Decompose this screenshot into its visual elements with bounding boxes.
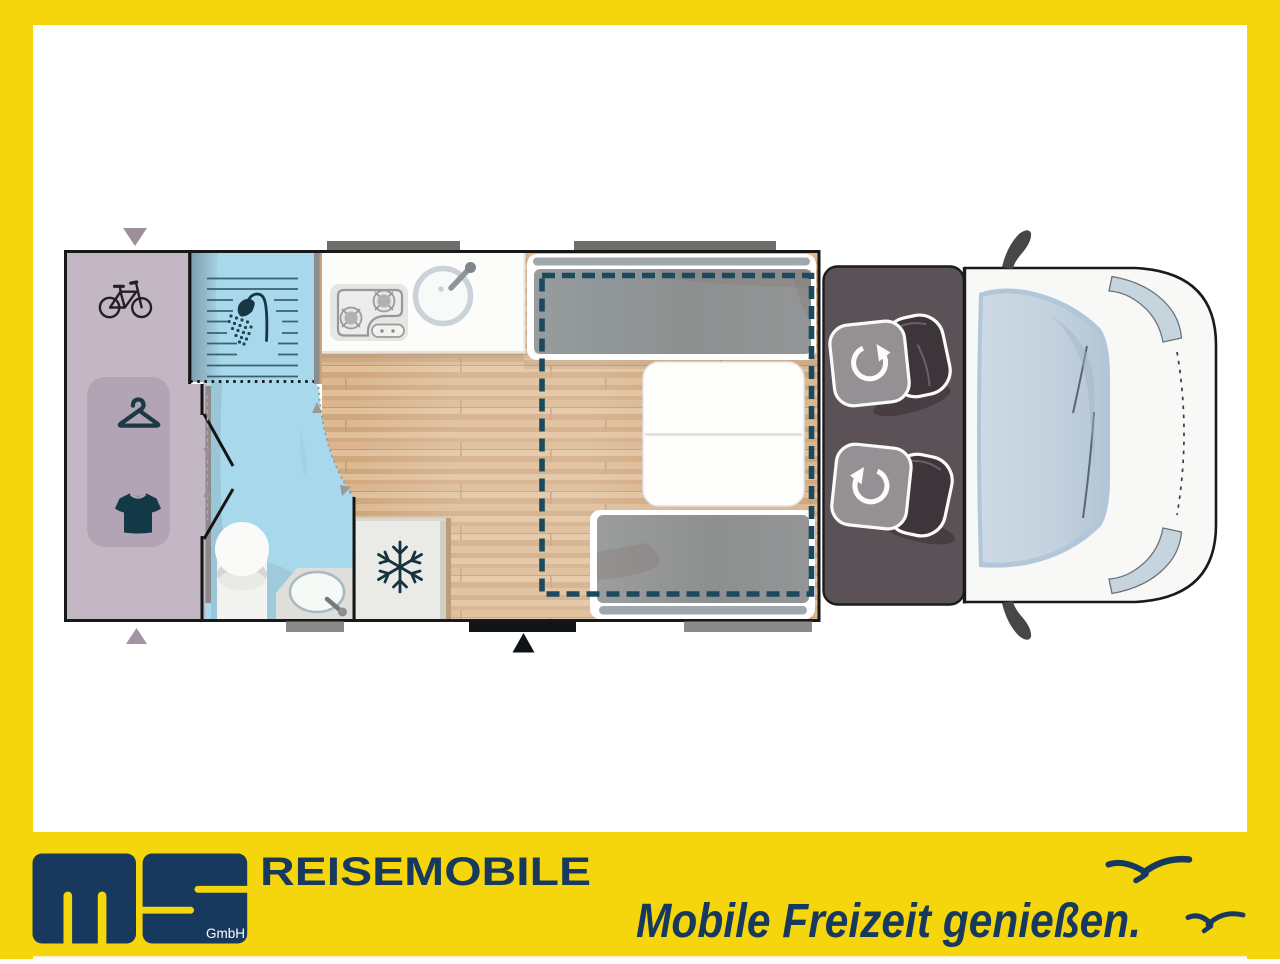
svg-text:GmbH: GmbH <box>206 926 245 941</box>
svg-text:REISEMOBILE: REISEMOBILE <box>260 850 591 894</box>
svg-text:Mobile Freizeit genießen.: Mobile Freizeit genießen. <box>636 895 1141 948</box>
